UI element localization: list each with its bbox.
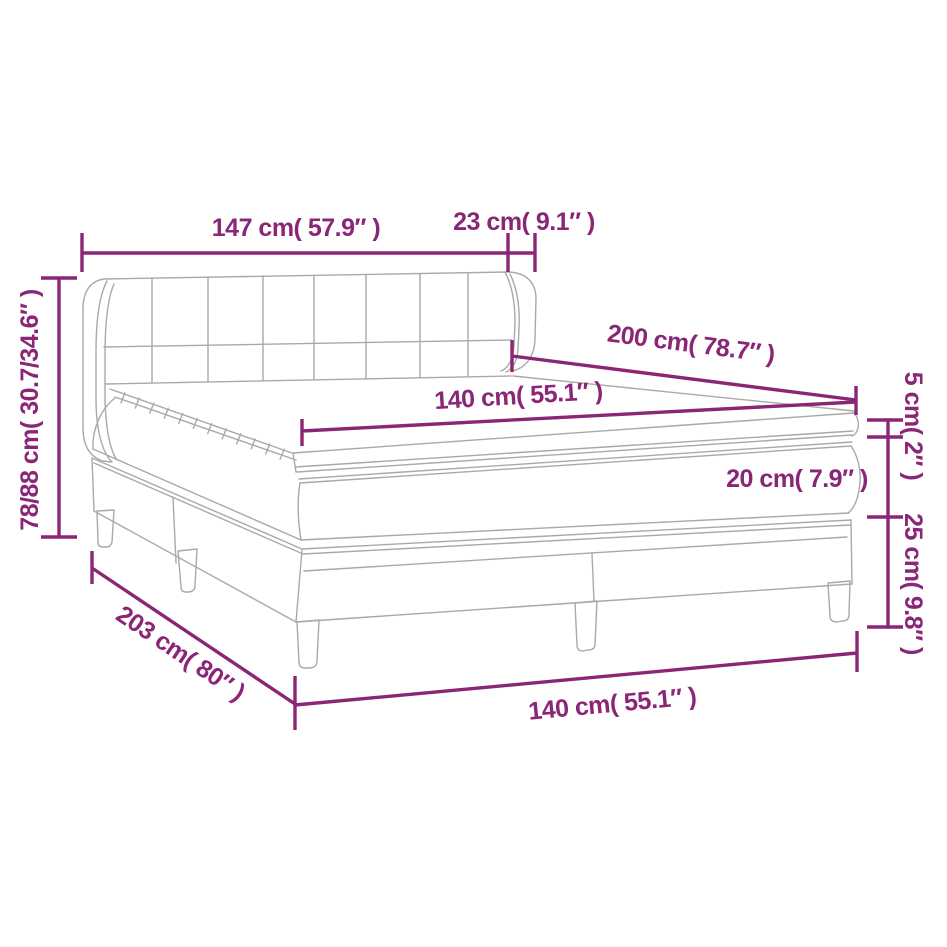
dim-mattress-width-label: 140 cm( 55.1″ ) bbox=[434, 377, 604, 415]
zipper-hatching bbox=[121, 393, 284, 459]
diagram-canvas: 147 cm( 57.9″ ) 23 cm( 9.1″ ) 78/88 cm( … bbox=[0, 0, 947, 947]
topper-right-end bbox=[852, 413, 858, 436]
dim-base-height-label: 25 cm( 9.8″ ) bbox=[899, 513, 927, 655]
dim-headboard-height: 78/88 cm( 30.7/34.6″ ) bbox=[16, 278, 77, 537]
base-front-band bbox=[304, 537, 847, 571]
dim-mattress-thickness-label: 20 cm( 7.9″ ) bbox=[726, 465, 868, 493]
bed-legs bbox=[97, 510, 850, 668]
dim-frame-length-line bbox=[92, 551, 295, 730]
zipper-strip-top bbox=[110, 389, 292, 453]
bed-leg bbox=[97, 510, 114, 547]
dim-mattress-width-line bbox=[302, 402, 856, 446]
dim-height-stack-line bbox=[867, 420, 903, 627]
base-corner-edge bbox=[296, 550, 302, 622]
dim-frame-length-label: 203 cm( 80″ ) bbox=[111, 600, 250, 706]
dim-frame-length: 203 cm( 80″ ) bbox=[92, 551, 295, 730]
headboard-left-wing-roll-inner bbox=[105, 284, 117, 460]
topper-left-end bbox=[293, 453, 296, 472]
mattress-front-left-edge bbox=[298, 483, 301, 540]
dim-headboard-height-label: 78/88 cm( 30.7/34.6″ ) bbox=[16, 289, 44, 531]
base-front-bottom-edge bbox=[296, 584, 852, 622]
dim-topper-thickness-label: 5 cm( 2″ ) bbox=[899, 372, 927, 481]
dim-headboard-side-depth-label: 23 cm( 9.1″ ) bbox=[453, 208, 595, 236]
base-left-seam bbox=[173, 497, 176, 563]
bed-leg bbox=[828, 581, 850, 622]
bed-leg bbox=[297, 620, 319, 668]
mattress-bottom-edge-left bbox=[93, 449, 301, 540]
dim-headboard-width: 147 cm( 57.9″ ) 23 cm( 9.1″ ) bbox=[82, 208, 595, 272]
zipper-piping bbox=[110, 389, 296, 460]
bed-dimension-diagram: 147 cm( 57.9″ ) 23 cm( 9.1″ ) 78/88 cm( … bbox=[0, 0, 947, 947]
dim-bed-length-label: 200 cm( 78.7″ ) bbox=[606, 319, 777, 368]
base-right-edge bbox=[851, 520, 852, 584]
dim-headboard-width-label: 147 cm( 57.9″ ) bbox=[212, 214, 381, 242]
headboard-tufting-seams bbox=[104, 273, 511, 382]
bed-leg bbox=[575, 601, 597, 651]
headboard-bottom-edge bbox=[106, 376, 511, 384]
headboard bbox=[83, 272, 536, 462]
dim-frame-width-label: 140 cm( 55.1″ ) bbox=[527, 682, 698, 725]
mattress-bottom-edge-front bbox=[301, 513, 849, 540]
base-left-edge bbox=[92, 458, 94, 511]
headboard-left-wing-roll bbox=[96, 281, 112, 462]
base-front-seam bbox=[592, 553, 594, 601]
dim-frame-width: 140 cm( 55.1″ ) bbox=[295, 631, 857, 726]
topper-front-bottom-edge bbox=[295, 431, 853, 467]
zipper-strip-bottom bbox=[115, 397, 296, 460]
dim-headboard-height-line bbox=[41, 278, 77, 537]
bed-leg bbox=[178, 549, 197, 592]
headboard-top-edge bbox=[104, 272, 536, 371]
